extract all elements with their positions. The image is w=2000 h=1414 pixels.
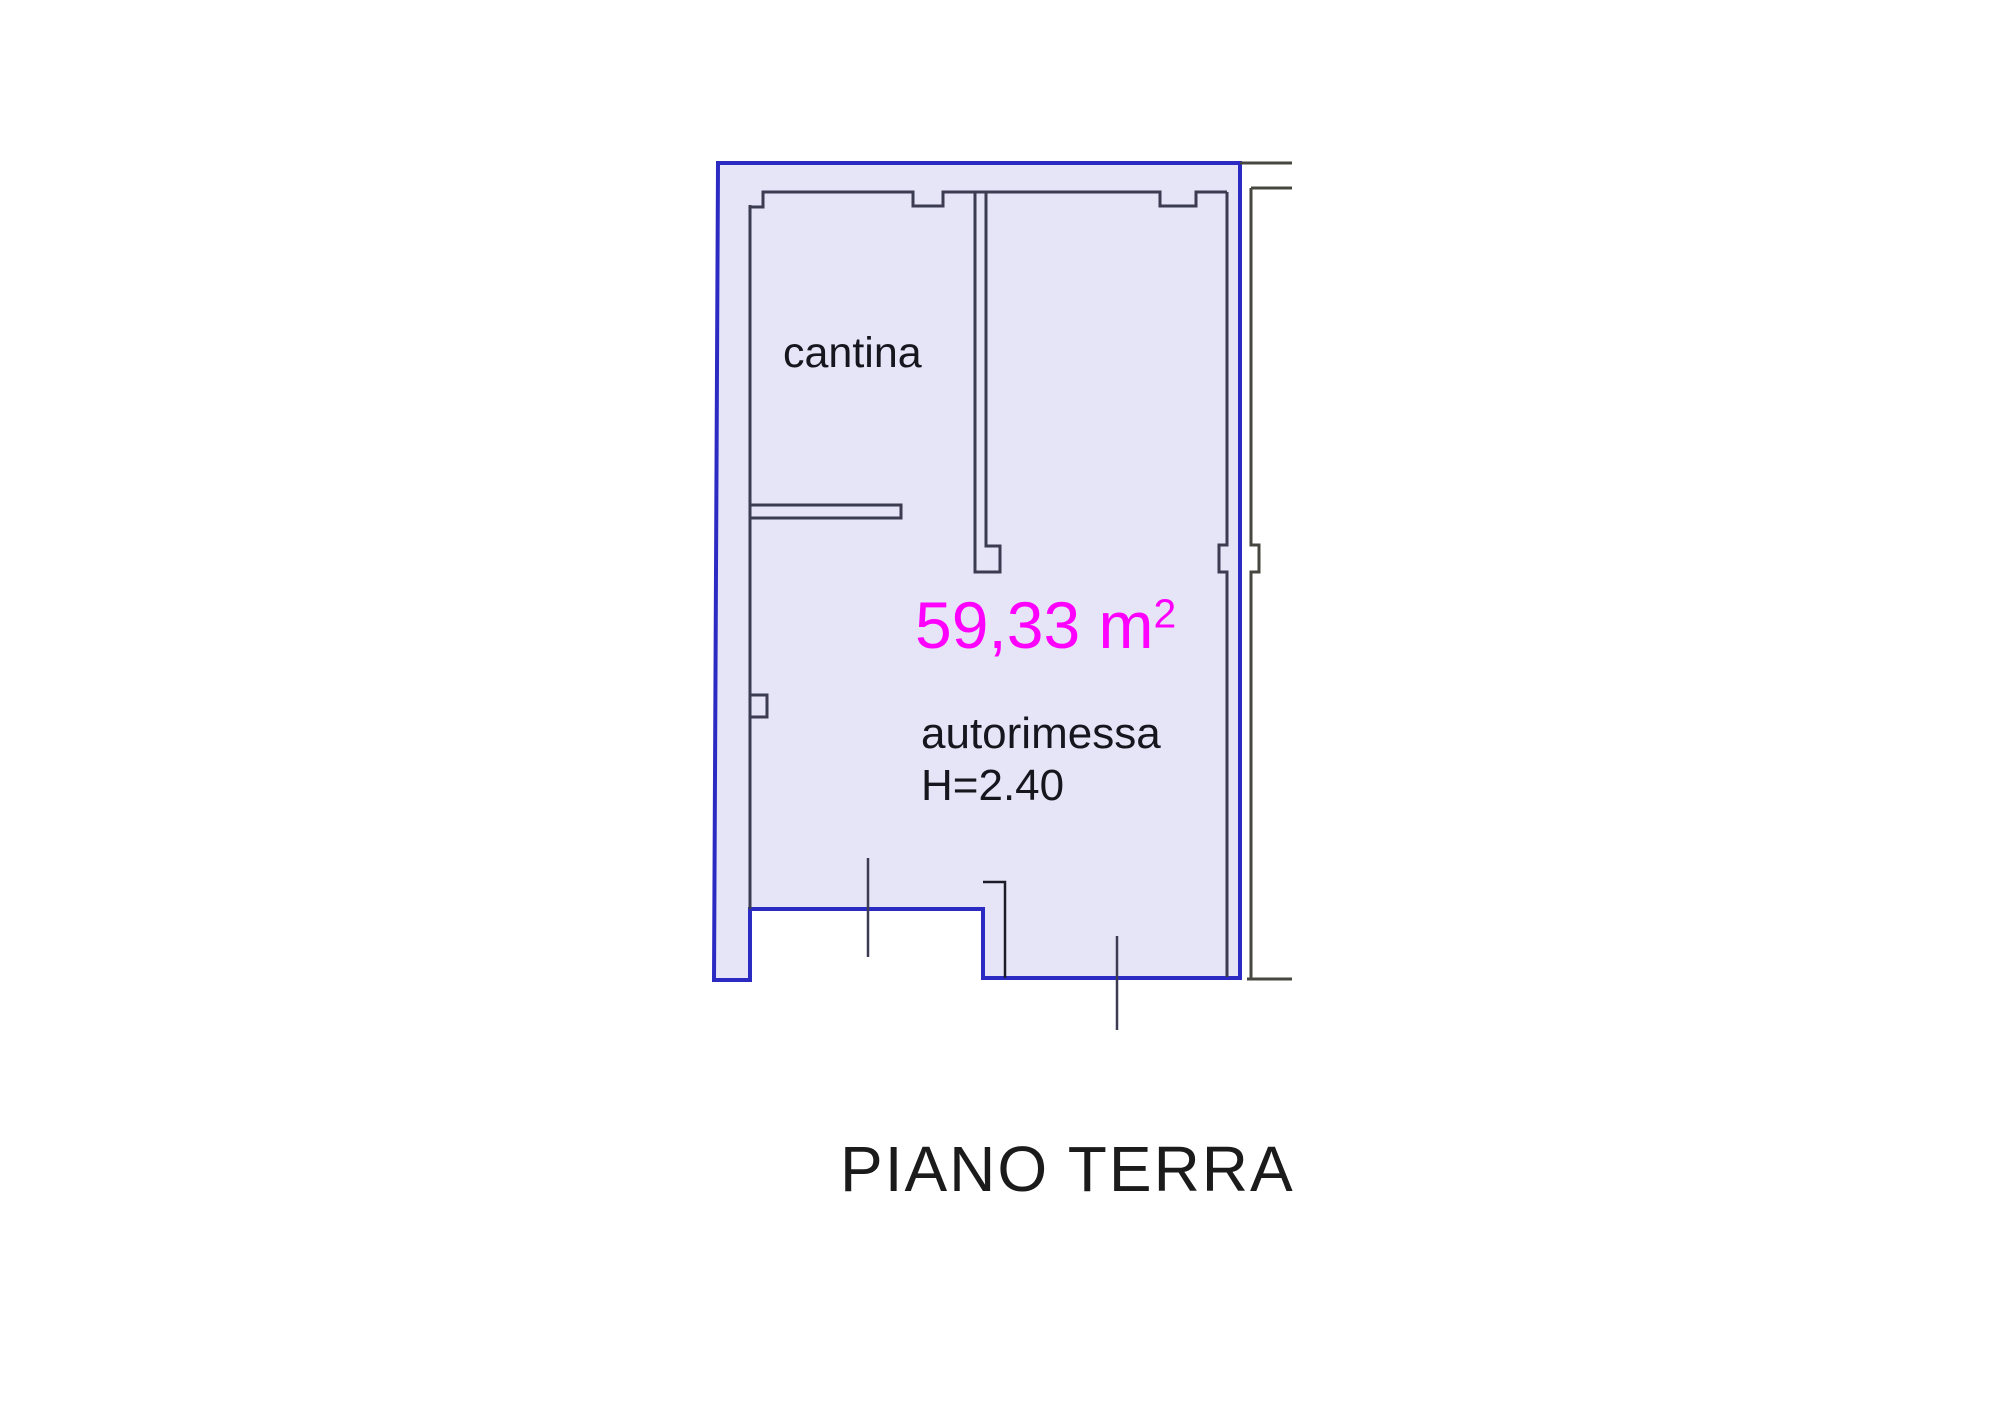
floor-title: PIANO TERRA — [840, 1137, 1240, 1201]
area-superscript: 2 — [1153, 591, 1176, 637]
area-value: 59,33 m — [915, 588, 1153, 662]
room-label-autorimessa: autorimessa — [921, 712, 1161, 756]
right-outer-wall-line — [1251, 188, 1259, 979]
floor-plan-page: cantina 59,33 m2 autorimessa H=2.40 PIAN… — [0, 0, 2000, 1414]
ceiling-height-label: H=2.40 — [921, 764, 1064, 808]
left-wall-pilaster — [750, 695, 767, 717]
room-label-cantina: cantina — [783, 332, 922, 375]
area-label: 59,33 m2 — [915, 592, 1176, 658]
